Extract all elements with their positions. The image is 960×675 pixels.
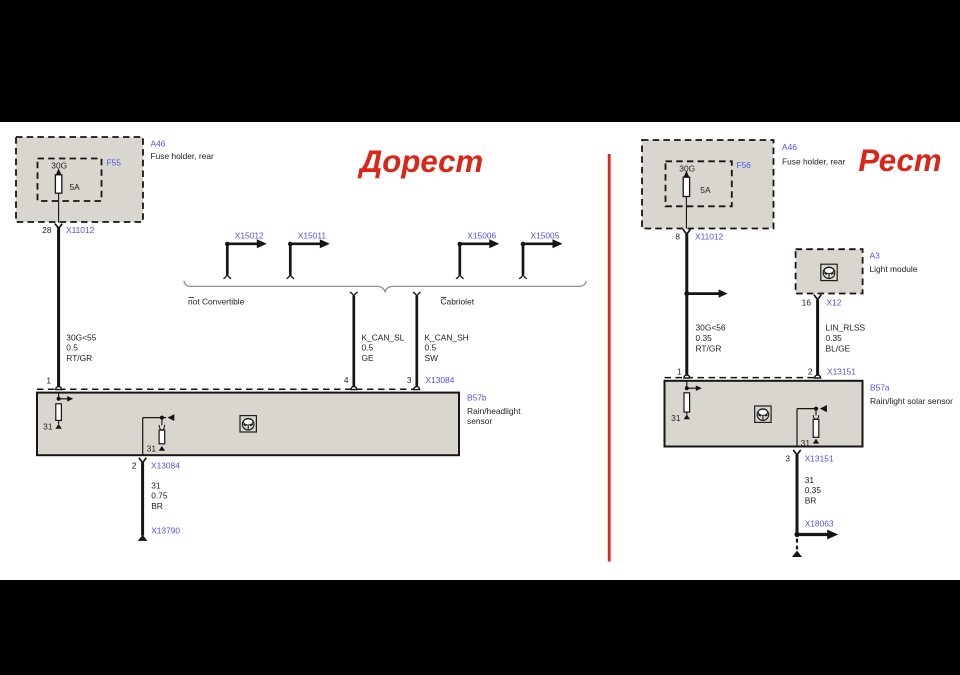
svg-text:RT/GR: RT/GR	[66, 353, 92, 363]
svg-text:LIN_RLSS: LIN_RLSS	[826, 323, 866, 333]
svg-text:A46: A46	[782, 142, 797, 152]
svg-text:not Convertible: not Convertible	[188, 296, 245, 306]
svg-text:X15011: X15011	[298, 231, 327, 241]
svg-text:30G: 30G	[51, 161, 67, 171]
svg-text:4: 4	[344, 375, 349, 385]
svg-text:SW: SW	[425, 353, 439, 363]
svg-text:X13790: X13790	[151, 526, 180, 536]
svg-text:Fuse holder, rear: Fuse holder, rear	[151, 151, 215, 161]
svg-text:3: 3	[407, 375, 412, 385]
svg-text:K_CAN_SL: K_CAN_SL	[362, 332, 405, 342]
svg-text:X12: X12	[827, 297, 842, 307]
svg-text:1: 1	[46, 376, 51, 386]
svg-text:0.5: 0.5	[425, 343, 437, 353]
svg-text:30G<55: 30G<55	[66, 332, 96, 342]
svg-text:5A: 5A	[700, 185, 711, 195]
svg-text:30G<56: 30G<56	[696, 323, 726, 333]
svg-text:X15006: X15006	[467, 231, 496, 241]
svg-text:BR: BR	[151, 501, 163, 511]
svg-text:0.35: 0.35	[826, 333, 843, 343]
svg-text:RT/GR: RT/GR	[696, 343, 722, 353]
svg-text:2: 2	[808, 367, 813, 377]
svg-text:B57a: B57a	[870, 383, 890, 393]
svg-text:X13084: X13084	[426, 375, 455, 385]
svg-text:2: 2	[132, 460, 137, 470]
svg-text:BR: BR	[805, 496, 817, 506]
svg-text:28: 28	[42, 225, 52, 235]
svg-text:0.5: 0.5	[66, 343, 78, 353]
svg-text:30G: 30G	[679, 164, 695, 174]
svg-text:sensor: sensor	[467, 416, 492, 426]
svg-text:31: 31	[805, 475, 815, 485]
svg-text:A3: A3	[870, 251, 881, 261]
svg-text:Рест: Рест	[858, 143, 941, 178]
svg-text:31: 31	[671, 413, 681, 423]
svg-text:Дорест: Дорест	[357, 144, 483, 179]
svg-text:Rain/headlight: Rain/headlight	[467, 406, 521, 416]
svg-text:1: 1	[677, 367, 682, 377]
svg-text:F55: F55	[107, 158, 122, 168]
svg-text:X11012: X11012	[695, 231, 724, 241]
svg-text:3: 3	[785, 454, 790, 464]
svg-text:Light module: Light module	[870, 264, 918, 274]
svg-text:0.75: 0.75	[151, 491, 168, 501]
svg-text:X15005: X15005	[531, 231, 560, 241]
svg-text:F56: F56	[737, 160, 752, 170]
svg-text:0.35: 0.35	[696, 333, 713, 343]
svg-text:K_CAN_SH: K_CAN_SH	[425, 332, 469, 342]
svg-text:31: 31	[147, 444, 157, 454]
svg-text:GE: GE	[362, 353, 375, 363]
svg-text:0.35: 0.35	[805, 485, 822, 495]
svg-text:A46: A46	[151, 139, 166, 149]
svg-text:31: 31	[151, 480, 161, 490]
svg-text:Rain/light solar sensor: Rain/light solar sensor	[870, 396, 953, 406]
svg-text:X11012: X11012	[66, 225, 95, 235]
svg-text:31: 31	[801, 438, 811, 448]
svg-text:8: 8	[675, 231, 680, 241]
svg-text:X13084: X13084	[151, 460, 180, 470]
svg-text:31: 31	[43, 422, 53, 432]
svg-text:X13151: X13151	[827, 367, 856, 377]
svg-text:16: 16	[802, 297, 812, 307]
svg-text:X13151: X13151	[805, 454, 834, 464]
svg-text:BL/GE: BL/GE	[826, 343, 851, 353]
svg-text:0.5: 0.5	[362, 343, 374, 353]
svg-text:Fuse holder, rear: Fuse holder, rear	[782, 157, 846, 167]
svg-text:X18063: X18063	[805, 518, 834, 528]
svg-text:B57b: B57b	[467, 393, 487, 403]
svg-text:5A: 5A	[70, 182, 81, 192]
svg-text:X15012: X15012	[235, 231, 264, 241]
